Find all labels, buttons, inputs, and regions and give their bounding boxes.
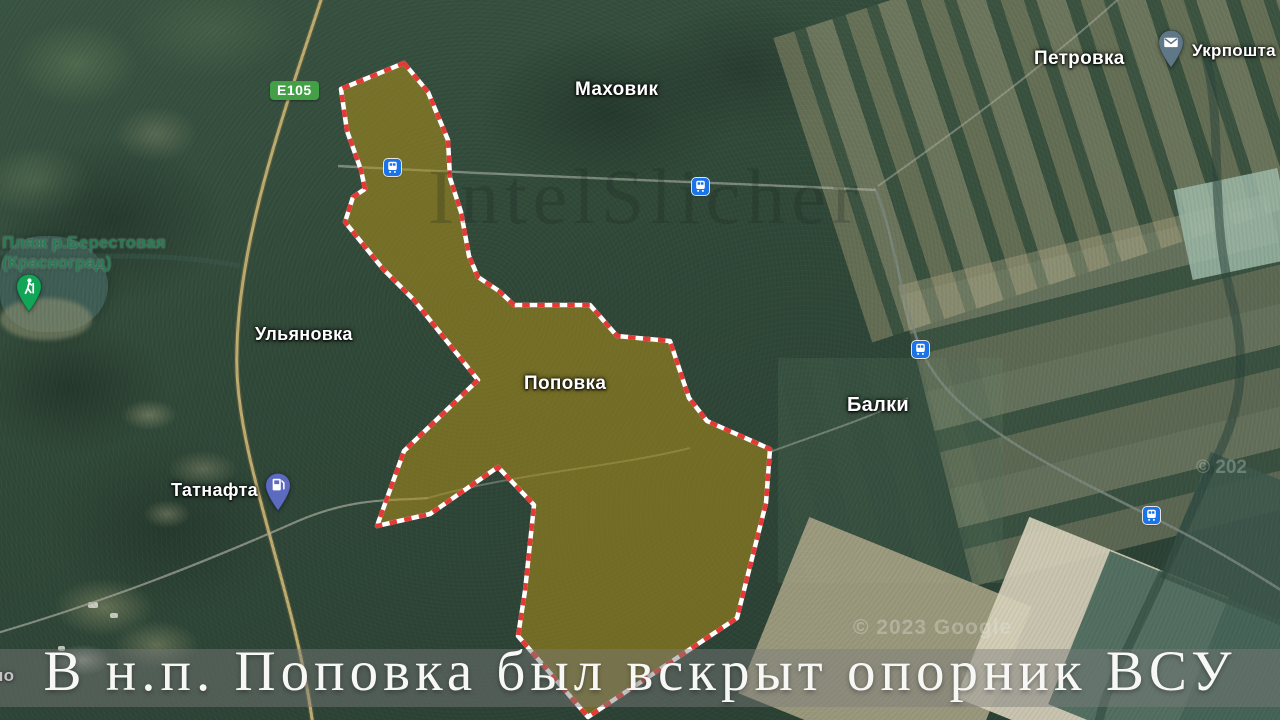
mail-pin-icon[interactable] (1157, 29, 1185, 69)
caption-band: В н.п. Поповка был вскрыт опорник ВСУ (0, 649, 1280, 707)
town-label-petrovka: Петровка (1034, 48, 1125, 70)
fuel-pin-icon[interactable] (264, 472, 292, 512)
channel-watermark: IntelSlicher (428, 152, 898, 242)
town-label-balki: Балки (847, 394, 909, 417)
caption-text: В н.п. Поповка был вскрыт опорник ВСУ (0, 639, 1280, 704)
town-label-mahovik: Маховик (575, 79, 658, 101)
train-station-icon[interactable] (692, 178, 709, 195)
train-station-icon[interactable] (384, 159, 401, 176)
train-station-icon[interactable] (912, 341, 929, 358)
road-badge-e105: E105 (270, 81, 319, 100)
google-copyright: © 2023 Google (853, 616, 1012, 640)
beach-label-line1: Пляж р.Берестовая (2, 233, 166, 253)
highlight-zone (0, 0, 1280, 720)
map-viewport[interactable]: IntelSlicher © 2023 Google © 202 Маховик… (0, 0, 1280, 720)
copyright-fragment: © 202 (1196, 457, 1247, 479)
poi-label-ukrposhta: Укрпошта (1192, 41, 1276, 61)
poi-label-tatnafta: Татнафта (171, 480, 258, 501)
beach-label-line2: (Красноград) (2, 253, 111, 273)
train-station-icon[interactable] (1143, 507, 1160, 524)
town-label-popovka: Поповка (524, 373, 606, 395)
hiking-pin-icon[interactable] (15, 273, 43, 313)
town-label-ulyanovka: Ульяновка (255, 324, 353, 345)
